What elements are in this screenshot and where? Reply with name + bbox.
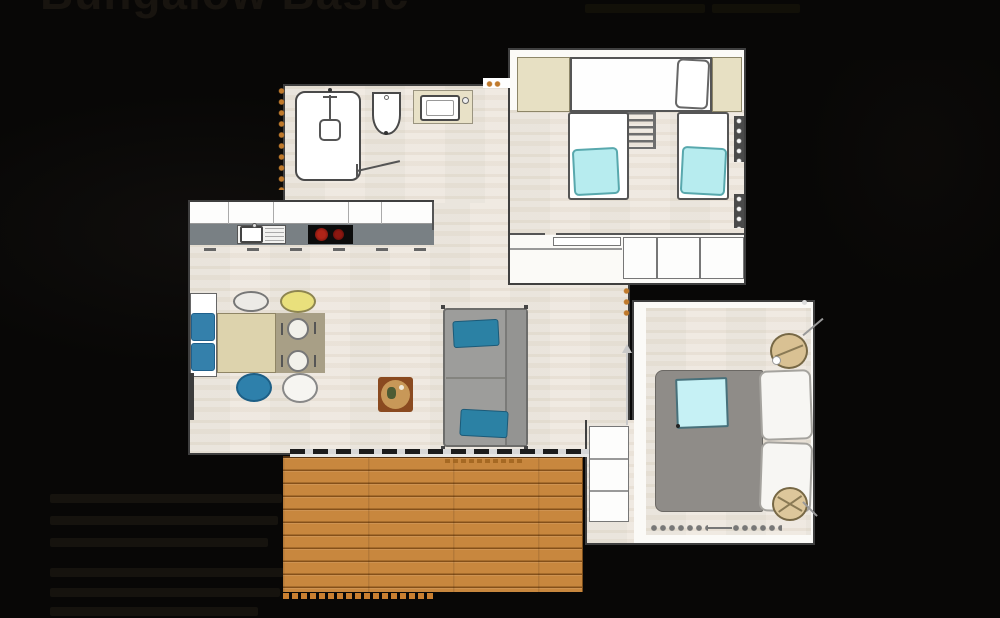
cabinet-1: [623, 237, 657, 279]
wardrobe-shelf-line: [590, 458, 628, 460]
shower-head-icon: [319, 119, 341, 141]
ladder: [626, 112, 656, 149]
sofa-foot: [524, 305, 528, 309]
drawer-handle: [204, 248, 216, 251]
measurement-arrow-line: [626, 352, 628, 425]
cutlery: [281, 355, 283, 367]
single-bed-right-pillow: [680, 146, 727, 196]
faded-subtitle-bar: [712, 4, 800, 13]
cutlery: [281, 323, 283, 335]
sofa-foot: [441, 305, 445, 309]
wall-shelf: [553, 237, 621, 246]
bed-pillow-top: [759, 369, 813, 441]
shower-valve-dot: [328, 88, 332, 92]
drawer-handle: [376, 248, 388, 251]
wardrobe-tall: [589, 426, 629, 522]
sofa-pillow-top: [452, 319, 499, 348]
chair-white: [282, 373, 318, 403]
cabinet-2: [657, 237, 700, 279]
deck-terrace: [283, 456, 583, 592]
bathroom-door-stub: [356, 164, 358, 178]
upper-cabinets: [190, 202, 434, 224]
faded-paragraph-line: [50, 494, 282, 503]
sofa-backrest: [505, 310, 526, 445]
wardrobe-right: [712, 57, 742, 112]
plate: [287, 350, 309, 372]
drawer-handle: [247, 248, 259, 251]
sink-basin-inner: [426, 100, 454, 116]
cooktop-burner-right: [333, 229, 344, 240]
faded-paragraph-line: [50, 588, 280, 597]
window-band-left: [189, 373, 194, 420]
wardrobe-left: [517, 57, 570, 112]
cutlery: [314, 355, 316, 367]
watermark-dashes: [445, 459, 525, 463]
deck-dimension-dashes: [283, 593, 433, 599]
faded-paragraph-line: [50, 538, 268, 547]
loft-bed-pillow: [675, 58, 711, 110]
faded-subtitle-bar: [585, 4, 705, 13]
sliding-door-sill: [290, 454, 623, 457]
curtain-coil-right: [732, 524, 782, 532]
bench-cushion-bottom: [191, 343, 215, 371]
chair-blue: [236, 373, 272, 402]
chair-yellow: [280, 290, 316, 313]
sofa-seat-seam: [446, 377, 505, 379]
page-title: Bungalow Basic: [40, 0, 409, 20]
sofa-pillow-bottom: [459, 409, 508, 438]
curtain-rail: [708, 527, 732, 529]
window-shade-upper: [734, 116, 744, 162]
wall-dot: [802, 300, 807, 305]
bench-cushion-top: [191, 313, 215, 341]
drawer-handle: [333, 248, 345, 251]
wall-hallway-divider: [432, 202, 434, 230]
dimension-marker-column: [278, 86, 285, 190]
cabinet-divider: [381, 202, 382, 224]
drawer-handle: [290, 248, 302, 251]
cabinet-3: [700, 237, 744, 279]
page-background: Bungalow Basic: [0, 0, 1000, 618]
bed-throw-cyan: [675, 377, 729, 429]
toilet-base-dot: [384, 131, 388, 135]
kitchen-sink-basin: [240, 226, 263, 243]
divider-line: [510, 248, 622, 250]
plate: [287, 318, 309, 340]
cabinet-divider: [348, 202, 349, 224]
faded-paragraph-line: [50, 568, 284, 577]
shower-stem: [329, 95, 331, 119]
single-bed-left-pillow: [572, 147, 620, 196]
wall-kids-bottom-right: [556, 233, 744, 235]
rug-pattern-dot: [399, 385, 404, 390]
wardrobe-shelf-line: [590, 490, 628, 492]
kitchen-drainboard: [265, 228, 284, 242]
drawer-handle: [414, 248, 426, 251]
curtain-coil-left: [650, 524, 708, 532]
cabinet-divider: [228, 202, 229, 224]
faded-paragraph-line: [50, 607, 258, 616]
dimension-marker-top: [486, 79, 502, 88]
background-photo-shade: [800, 60, 1000, 300]
shower-arm: [323, 96, 337, 98]
rug-pattern-dot: [387, 387, 396, 399]
dimension-marker-master: [623, 286, 630, 317]
faded-paragraph-line: [50, 516, 278, 525]
bed-throw-dot: [676, 424, 680, 428]
cabinet-divider: [273, 202, 274, 224]
kitchen-faucet-dot: [252, 223, 257, 228]
stool-top-cup: [772, 356, 781, 365]
chair-gray: [233, 291, 269, 312]
wall-kids-bottom-left: [510, 233, 545, 235]
measurement-arrow-head: [622, 344, 632, 353]
cutlery: [314, 322, 316, 334]
faucet-dot: [462, 97, 469, 104]
toilet-flush-dot: [384, 95, 389, 100]
cooktop-burner-left: [315, 228, 328, 241]
window-shade-lower: [734, 194, 744, 228]
